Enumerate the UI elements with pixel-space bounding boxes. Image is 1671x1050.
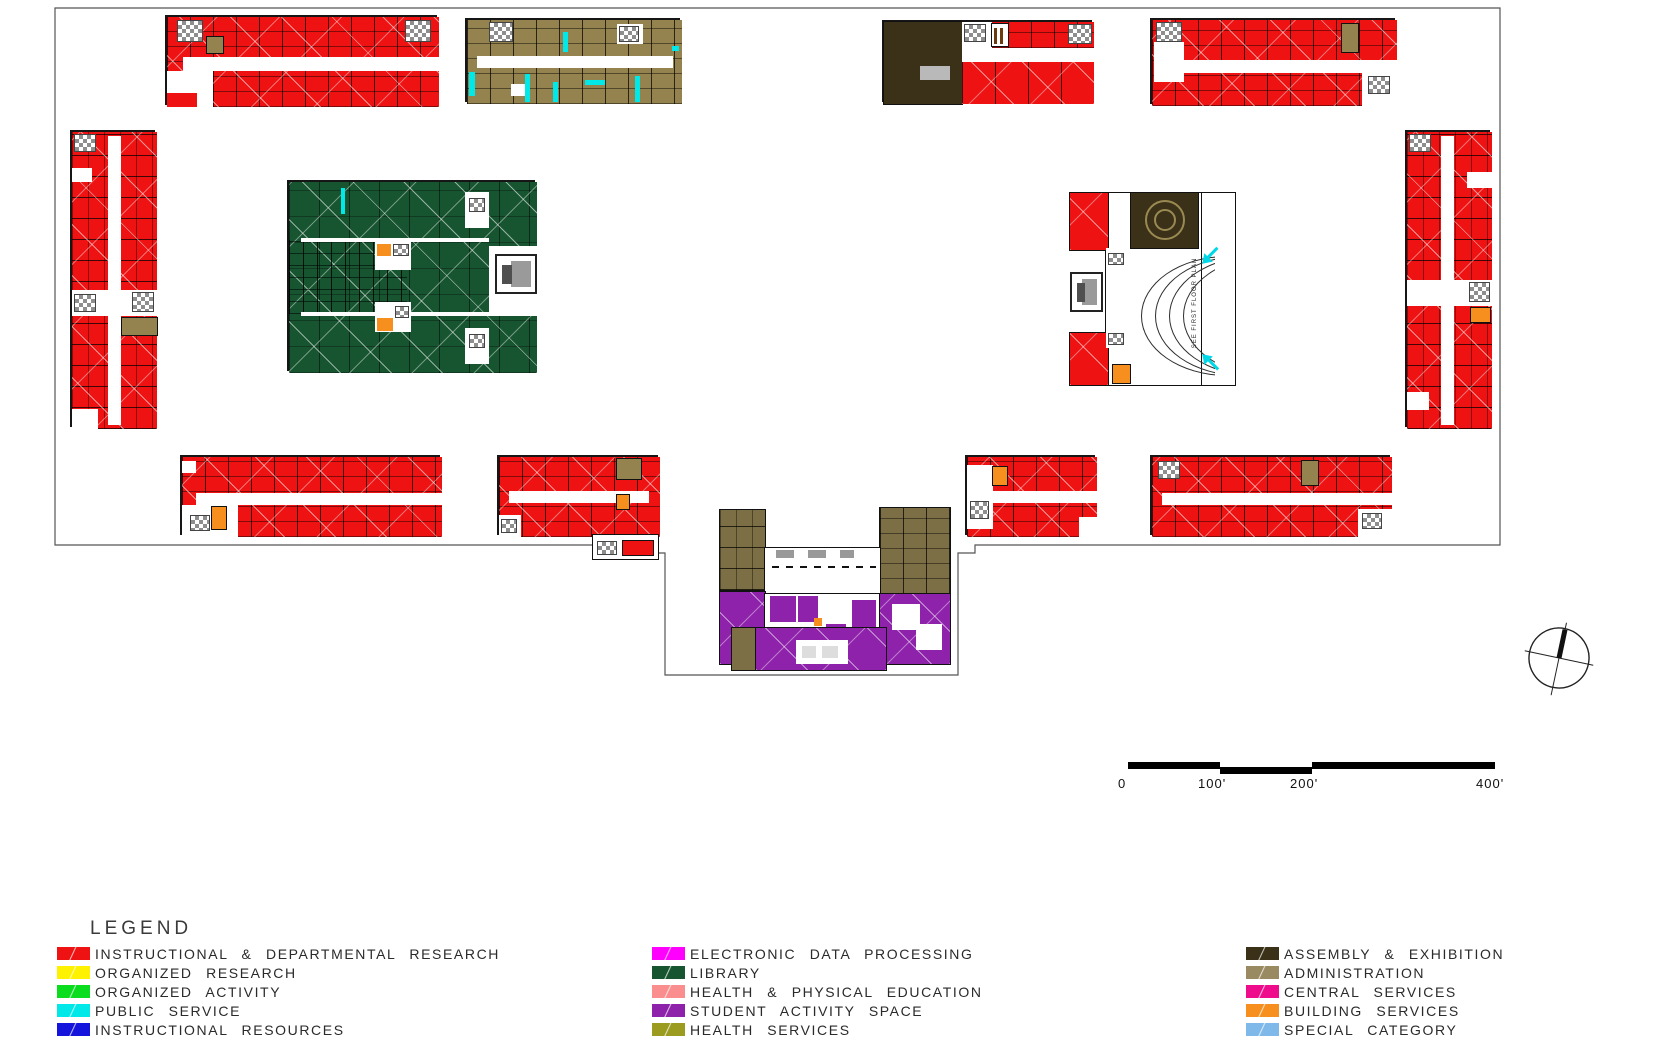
checker-block: [597, 541, 617, 555]
legend-swatch: [652, 966, 685, 979]
legend-column-1: INSTRUCTIONAL & DEPARTMENTAL RESEARCHORG…: [57, 944, 500, 1039]
plan-block: [1070, 333, 1108, 385]
checker-block: [964, 24, 986, 42]
pavilion-interior: [511, 261, 531, 287]
checker-block: [74, 294, 96, 312]
plan-block: [962, 62, 1094, 104]
plan-block: [377, 318, 393, 331]
south-building-3: [965, 455, 1095, 535]
plan-block: [916, 624, 942, 650]
plan-block: [967, 465, 993, 529]
legend-item: ORGANIZED ACTIVITY: [57, 982, 500, 1001]
plan-block: [1162, 493, 1392, 505]
plan-block: [563, 32, 568, 52]
scale-bar-segment: [1220, 767, 1312, 774]
plan-block: [840, 550, 854, 558]
checker-block: [1368, 76, 1390, 94]
legend-label: ASSEMBLY & EXHIBITION: [1284, 946, 1504, 962]
plan-block: [207, 37, 223, 53]
legend-label: SPECIAL CATEGORY: [1284, 1022, 1457, 1038]
south-building-4: [1150, 455, 1390, 535]
stage-turntable-icon: [1154, 209, 1176, 231]
plan-block: [814, 618, 822, 626]
plan-block: [1154, 42, 1184, 82]
plan-block: [617, 459, 641, 479]
plan-block: [525, 74, 530, 102]
plan-block: [553, 82, 558, 102]
plan-block: [1113, 365, 1130, 383]
legend-item: INSTRUCTIONAL & DEPARTMENTAL RESEARCH: [57, 944, 500, 963]
plan-block: [993, 467, 1007, 485]
legend-label: INSTRUCTIONAL RESOURCES: [95, 1022, 345, 1038]
pavilion-block: [495, 254, 537, 294]
checker-block: [190, 515, 210, 531]
legend-label: ORGANIZED RESEARCH: [95, 965, 297, 981]
plan-block: [776, 550, 794, 558]
legend-swatch: [652, 947, 685, 960]
plan-block: [808, 550, 826, 558]
legend-item: HEALTH & PHYSICAL EDUCATION: [652, 982, 983, 1001]
checker-block: [1469, 282, 1490, 302]
checker-block: [619, 26, 639, 42]
checker-block: [1108, 253, 1124, 265]
plan-block: [962, 48, 1094, 62]
legend-label: ELECTRONIC DATA PROCESSING: [690, 946, 973, 962]
dash-block: [772, 566, 876, 568]
legend-label: ORGANIZED ACTIVITY: [95, 984, 281, 1000]
checker-block: [1409, 134, 1431, 152]
legend-swatch: [652, 1023, 685, 1036]
plan-block: [183, 57, 423, 71]
north-building-3-assembly: [882, 20, 1092, 102]
legend-swatch: [652, 1004, 685, 1017]
scale-bar-label: 200': [1290, 776, 1318, 791]
legend-column-3: ASSEMBLY & EXHIBITIONADMINISTRATIONCENTR…: [1246, 944, 1504, 1039]
pavilion-block: [1070, 272, 1103, 312]
library-building: [287, 180, 535, 371]
legend-swatch: [1246, 1023, 1279, 1036]
checker-block: [970, 501, 989, 519]
plan-block: [1079, 517, 1097, 537]
plan-block: [511, 84, 525, 96]
plan-block: [822, 646, 838, 658]
checker-block: [469, 334, 485, 348]
scale-bar-label: 400': [1476, 776, 1504, 791]
plan-block: [72, 409, 98, 429]
legend-item: BUILDING SERVICES: [1246, 1001, 1504, 1020]
plan-block: [341, 188, 345, 214]
legend-label: LIBRARY: [690, 965, 761, 981]
checker-block: [489, 22, 513, 42]
legend-swatch: [57, 947, 90, 960]
legend-item: PUBLIC SERVICE: [57, 1001, 500, 1020]
plan-block: [802, 646, 816, 658]
checker-block: [1158, 461, 1180, 479]
south-building-2: [497, 455, 658, 535]
legend-item: INSTRUCTIONAL RESOURCES: [57, 1020, 500, 1039]
legend-swatch: [652, 985, 685, 998]
plan-block: [617, 495, 629, 509]
legend-swatch: [1246, 966, 1279, 979]
plan-block: [880, 508, 950, 594]
buildings-layer: SEE FIRST FLOOR PLAN: [0, 0, 1671, 1050]
north-building-4: [1150, 18, 1395, 104]
checker-block: [393, 244, 409, 256]
legend-item: ELECTRONIC DATA PROCESSING: [652, 944, 983, 963]
plan-block: [720, 510, 765, 590]
legend-swatch: [57, 985, 90, 998]
legend-label: STUDENT ACTIVITY SPACE: [690, 1003, 923, 1019]
legend-item: HEALTH SERVICES: [652, 1020, 983, 1039]
plan-block: [182, 461, 196, 473]
plan-block: [477, 56, 673, 68]
legend-item: ORGANIZED RESEARCH: [57, 963, 500, 982]
checker-block: [1156, 22, 1182, 42]
checker-block: [177, 20, 203, 42]
legend-item: STUDENT ACTIVITY SPACE: [652, 1001, 983, 1020]
plan-block: [623, 541, 653, 555]
plan-block: [1302, 461, 1318, 485]
plan-block: [72, 168, 92, 182]
plan-block: [672, 46, 679, 51]
checker-block: [74, 134, 96, 152]
plan-block: [920, 66, 950, 80]
legend-item: ADMINISTRATION: [1246, 963, 1504, 982]
auditorium-note: SEE FIRST FLOOR PLAN: [1180, 273, 1210, 333]
plan-block: [1070, 193, 1108, 250]
checker-block: [405, 20, 431, 42]
legend-item: LIBRARY: [652, 963, 983, 982]
east-building: [1405, 130, 1490, 427]
scale-bar-segment: [1312, 762, 1495, 769]
student-union-building: [720, 508, 950, 670]
plan-block: [196, 493, 442, 505]
legend-swatch: [57, 966, 90, 979]
north-building-1: [165, 15, 437, 105]
plan-block: [122, 318, 157, 335]
legend-label: INSTRUCTIONAL & DEPARTMENTAL RESEARCH: [95, 946, 500, 962]
legend-label: CENTRAL SERVICES: [1284, 984, 1457, 1000]
plan-block: [469, 72, 475, 96]
plan-block: [770, 596, 796, 622]
checker-block: [1362, 513, 1382, 529]
scale-bar-label: 0: [1118, 776, 1126, 791]
plan-block: [377, 244, 391, 256]
theater-building: SEE FIRST FLOOR PLAN: [1070, 193, 1235, 385]
plan-block: [1471, 308, 1490, 322]
plan-block: [108, 136, 121, 425]
checker-block: [132, 292, 154, 312]
plan-block: [1407, 392, 1429, 410]
legend-title: LEGEND: [90, 918, 192, 940]
checker-block: [395, 306, 409, 318]
legend-item: SPECIAL CATEGORY: [1246, 1020, 1504, 1039]
pavilion-core: [1077, 283, 1085, 302]
legend-label: HEALTH & PHYSICAL EDUCATION: [690, 984, 983, 1000]
west-building: [70, 130, 155, 427]
checker-block: [469, 198, 485, 212]
legend-swatch: [1246, 1004, 1279, 1017]
checker-block: [1108, 333, 1124, 345]
plan-block: [212, 507, 226, 529]
north-arrow-icon: [1524, 622, 1594, 696]
ring-block: [1145, 200, 1185, 240]
legend-swatch: [1246, 985, 1279, 998]
legend-label: HEALTH SERVICES: [690, 1022, 851, 1038]
legend-swatch: [1246, 947, 1279, 960]
scale-bar-label: 100': [1198, 776, 1226, 791]
south-building-1: [180, 455, 440, 535]
plan-block: [993, 491, 1097, 503]
stripes-block: [994, 28, 1006, 44]
scale-bar-segment: [1128, 762, 1220, 769]
campus-space-utilization-plan: SEE FIRST FLOOR PLAN 0100'200'400' LEGEN…: [0, 0, 1671, 1050]
checker-block: [501, 519, 517, 533]
plan-block: [585, 80, 605, 85]
legend-column-2: ELECTRONIC DATA PROCESSINGLIBRARYHEALTH …: [652, 944, 983, 1039]
legend-label: ADMINISTRATION: [1284, 965, 1425, 981]
checker-block: [1068, 24, 1092, 44]
legend-label: BUILDING SERVICES: [1284, 1003, 1460, 1019]
legend-label: PUBLIC SERVICE: [95, 1003, 241, 1019]
north-building-2-administration: [465, 18, 680, 102]
pavilion-core: [502, 265, 512, 284]
legend-item: ASSEMBLY & EXHIBITION: [1246, 944, 1504, 963]
plan-block: [635, 76, 640, 102]
plan-block: [1467, 172, 1492, 188]
plan-block: [732, 628, 756, 670]
plan-block: [414, 57, 439, 71]
legend-swatch: [57, 1023, 90, 1036]
legend-item: CENTRAL SERVICES: [1246, 982, 1504, 1001]
plan-block: [884, 22, 962, 104]
plan-block: [1342, 24, 1358, 52]
legend-swatch: [57, 1004, 90, 1017]
plan-block: [167, 93, 197, 107]
